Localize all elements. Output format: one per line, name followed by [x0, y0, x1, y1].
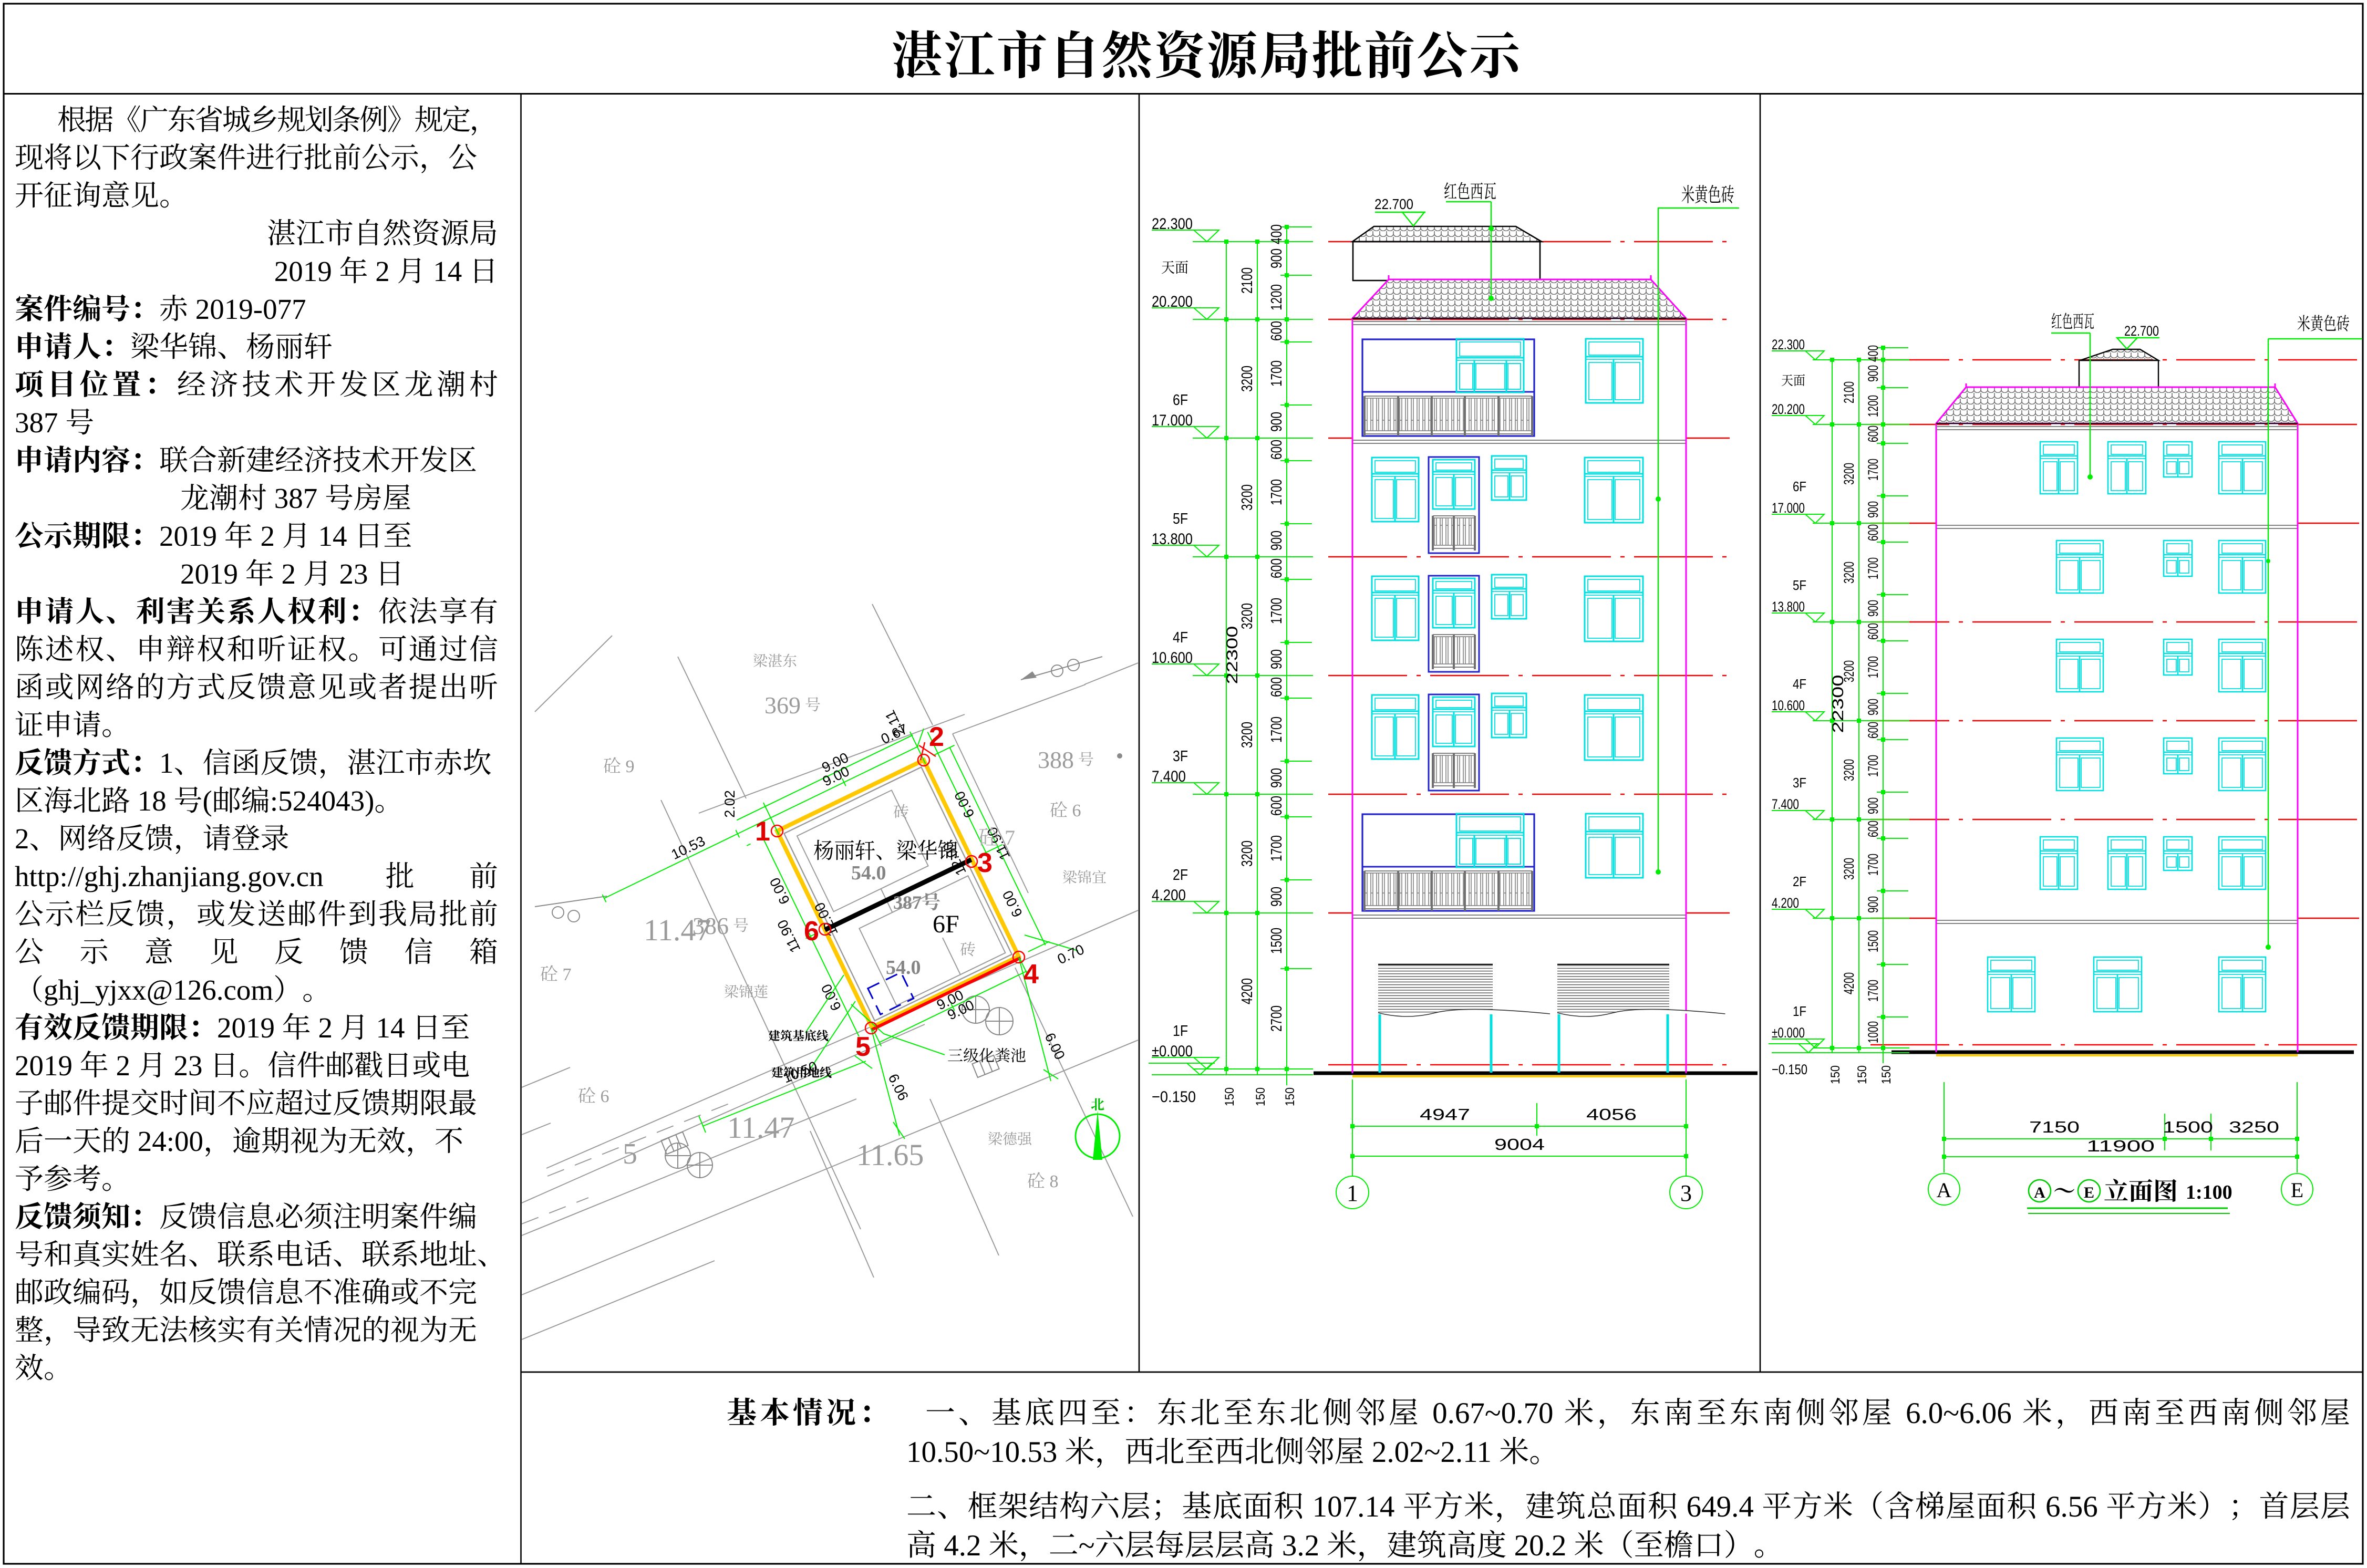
svg-text:6: 6 [804, 916, 819, 947]
svg-text:22300: 22300 [1224, 626, 1241, 684]
svg-text:5F: 5F [1793, 577, 1806, 593]
svg-text:红色西瓦: 红色西瓦 [1444, 177, 1496, 204]
svg-text:900: 900 [1865, 699, 1881, 715]
svg-text:砼 6: 砼 6 [1050, 796, 1081, 822]
svg-text:600: 600 [1268, 321, 1285, 341]
svg-text:900: 900 [1865, 600, 1881, 617]
svg-text:天面: 天面 [1781, 370, 1805, 389]
svg-text:6.00: 6.00 [1042, 1030, 1068, 1062]
svg-text:号: 号 [733, 912, 749, 936]
svg-text:1: 1 [755, 816, 770, 847]
svg-text:6F: 6F [1793, 479, 1806, 494]
svg-text:4056: 4056 [1586, 1105, 1637, 1124]
svg-text:3200: 3200 [1239, 484, 1256, 511]
svg-text:6.00: 6.00 [999, 888, 1026, 919]
svg-text:梁德强: 梁德强 [988, 1128, 1032, 1149]
svg-text:3F: 3F [1173, 748, 1188, 765]
svg-text:369: 369 [764, 692, 801, 719]
svg-text:砖: 砖 [893, 799, 909, 822]
svg-text:2F: 2F [1173, 867, 1188, 884]
svg-text:11.47: 11.47 [727, 1110, 794, 1145]
svg-text:米黄色砖: 米黄色砖 [2297, 309, 2350, 335]
svg-text:11900: 11900 [2086, 1137, 2155, 1155]
svg-text:1500: 1500 [2163, 1118, 2213, 1136]
svg-text:三级化粪池: 三级化粪池 [947, 1043, 1026, 1066]
svg-text:A: A [1937, 1178, 1952, 1202]
svg-text:−0.150: −0.150 [1152, 1088, 1196, 1106]
svg-text:2100: 2100 [1239, 267, 1256, 294]
svg-text:3200: 3200 [1841, 759, 1857, 781]
svg-text:20.200: 20.200 [1772, 401, 1805, 417]
svg-text:4200: 4200 [1239, 978, 1256, 1004]
svg-text:900: 900 [1268, 248, 1285, 268]
svg-text:600: 600 [1268, 558, 1285, 578]
svg-text:11.90: 11.90 [774, 917, 804, 955]
svg-text:400: 400 [1865, 345, 1881, 362]
svg-text:北: 北 [1091, 1094, 1104, 1114]
svg-text:150: 150 [1828, 1065, 1843, 1084]
svg-text:600: 600 [1865, 623, 1881, 640]
svg-text:3: 3 [1680, 1180, 1692, 1206]
svg-text:号: 号 [1078, 746, 1094, 770]
svg-text:600: 600 [1865, 425, 1881, 442]
svg-text:900: 900 [1268, 649, 1285, 669]
svg-text:3200: 3200 [1239, 366, 1256, 392]
svg-text:1200: 1200 [1268, 284, 1285, 310]
svg-text:7.400: 7.400 [1772, 796, 1799, 812]
svg-text:E: E [2291, 1178, 2303, 1202]
svg-text:900: 900 [1865, 501, 1881, 518]
svg-text:2F: 2F [1793, 874, 1806, 889]
svg-text:号: 号 [805, 692, 821, 715]
svg-text:22.700: 22.700 [1374, 196, 1413, 212]
svg-text:4.200: 4.200 [1772, 895, 1799, 911]
svg-text:4F: 4F [1793, 676, 1806, 692]
svg-text:9004: 9004 [1494, 1135, 1545, 1154]
svg-text:～: ～ [2053, 1174, 2075, 1206]
svg-text:砼 6: 砼 6 [578, 1082, 609, 1107]
svg-text:3200: 3200 [1239, 840, 1256, 867]
svg-text:梁锦宜: 梁锦宜 [1062, 866, 1107, 887]
svg-text:2: 2 [929, 722, 944, 752]
svg-text:900: 900 [1865, 365, 1881, 382]
svg-text:900: 900 [1865, 797, 1881, 814]
svg-text:±0.000: ±0.000 [1772, 1025, 1805, 1041]
svg-text:立面图: 立面图 [2104, 1172, 2178, 1207]
svg-text:6F: 6F [1173, 392, 1188, 409]
svg-text:A: A [2034, 1184, 2045, 1201]
svg-text:17.000: 17.000 [1772, 500, 1805, 516]
svg-text:4: 4 [1024, 959, 1039, 990]
svg-text:1700: 1700 [1865, 755, 1881, 777]
svg-text:400: 400 [1268, 224, 1285, 244]
svg-text:6.06: 6.06 [885, 1071, 912, 1103]
svg-text:22.700: 22.700 [2124, 323, 2159, 339]
svg-text:600: 600 [1268, 677, 1285, 697]
svg-text:3200: 3200 [1239, 603, 1256, 629]
svg-text:5: 5 [623, 1138, 637, 1170]
svg-text:2100: 2100 [1841, 381, 1857, 403]
svg-text:4947: 4947 [1420, 1105, 1470, 1124]
svg-text:天面: 天面 [1161, 256, 1188, 277]
svg-text:1500: 1500 [1268, 928, 1285, 954]
svg-text:1500: 1500 [1865, 930, 1881, 952]
svg-text:4F: 4F [1173, 629, 1188, 646]
svg-text:砼 8: 砼 8 [1027, 1167, 1059, 1192]
svg-text:杨丽轩、梁华锦: 杨丽轩、梁华锦 [813, 834, 958, 865]
svg-text:900: 900 [1268, 531, 1285, 551]
svg-text:1700: 1700 [1865, 656, 1881, 678]
svg-text:388: 388 [1038, 746, 1074, 773]
svg-text:10.600: 10.600 [1772, 698, 1805, 713]
svg-text:5: 5 [855, 1032, 871, 1062]
svg-text:3250: 3250 [2229, 1118, 2279, 1136]
svg-text:900: 900 [1268, 768, 1285, 788]
svg-text:150: 150 [1283, 1087, 1297, 1106]
svg-text:54.0: 54.0 [851, 862, 886, 884]
svg-text:红色西瓦: 红色西瓦 [2051, 307, 2094, 333]
svg-text:E: E [2084, 1184, 2094, 1201]
svg-text:900: 900 [1865, 896, 1881, 913]
svg-text:4200: 4200 [1841, 972, 1857, 994]
svg-text:2.02: 2.02 [722, 790, 738, 818]
svg-text:900: 900 [1268, 412, 1285, 432]
svg-text:1: 1 [1347, 1180, 1358, 1206]
svg-text:3200: 3200 [1841, 562, 1857, 584]
svg-text:150: 150 [1879, 1065, 1894, 1084]
svg-text:11.47: 11.47 [644, 913, 711, 947]
svg-text:600: 600 [1865, 821, 1881, 837]
svg-text:1700: 1700 [1268, 360, 1285, 387]
svg-text:1700: 1700 [1268, 835, 1285, 861]
svg-text:11.65: 11.65 [856, 1138, 924, 1172]
svg-text:1700: 1700 [1268, 716, 1285, 743]
svg-text:3200: 3200 [1841, 463, 1857, 485]
svg-text:砼 7: 砼 7 [540, 960, 572, 985]
svg-text:3200: 3200 [1239, 722, 1256, 748]
svg-text:1000: 1000 [1865, 1021, 1881, 1043]
svg-text:1700: 1700 [1268, 598, 1285, 624]
svg-text:3F: 3F [1793, 775, 1806, 791]
svg-text:600: 600 [1268, 796, 1285, 816]
svg-text:米黄色砖: 米黄色砖 [1681, 179, 1734, 207]
svg-text:600: 600 [1865, 524, 1881, 541]
svg-text:3: 3 [977, 848, 993, 878]
svg-text:砼 7: 砼 7 [978, 821, 1015, 851]
svg-text:1700: 1700 [1268, 479, 1285, 505]
svg-text:22.300: 22.300 [1772, 337, 1805, 352]
svg-text:1:100: 1:100 [2186, 1181, 2232, 1203]
svg-text:600: 600 [1865, 722, 1881, 739]
svg-text:150: 150 [1855, 1065, 1869, 1084]
svg-text:900: 900 [1268, 887, 1285, 907]
svg-text:54.0: 54.0 [886, 957, 921, 979]
svg-text:梁湛东: 梁湛东 [753, 650, 797, 671]
svg-text:6.00: 6.00 [952, 788, 978, 820]
svg-text:22300: 22300 [1829, 675, 1847, 733]
svg-text:砼 9: 砼 9 [603, 752, 635, 777]
svg-text:建筑基底线: 建筑基底线 [768, 1026, 829, 1044]
svg-text:387号: 387号 [893, 888, 940, 915]
svg-text:3200: 3200 [1841, 858, 1857, 880]
svg-text:1F: 1F [1793, 1003, 1806, 1019]
svg-text:5F: 5F [1173, 511, 1188, 527]
svg-text:13.800: 13.800 [1772, 599, 1805, 615]
svg-text:600: 600 [1268, 440, 1285, 460]
svg-text:2700: 2700 [1268, 1005, 1285, 1032]
svg-text:梁锦莲: 梁锦莲 [724, 981, 768, 1002]
svg-text:砖: 砖 [960, 937, 976, 960]
svg-text:1200: 1200 [1865, 395, 1881, 417]
svg-text:建筑用地线: 建筑用地线 [771, 1063, 832, 1081]
svg-text:1700: 1700 [1865, 854, 1881, 876]
svg-text:150: 150 [1254, 1087, 1268, 1106]
svg-text:1700: 1700 [1865, 557, 1881, 579]
svg-text:1F: 1F [1173, 1023, 1188, 1040]
svg-text:1700: 1700 [1865, 980, 1881, 1002]
svg-text:1700: 1700 [1865, 459, 1881, 481]
svg-text:150: 150 [1223, 1087, 1237, 1106]
svg-text:−0.150: −0.150 [1772, 1062, 1807, 1077]
svg-text:7150: 7150 [2029, 1118, 2080, 1136]
